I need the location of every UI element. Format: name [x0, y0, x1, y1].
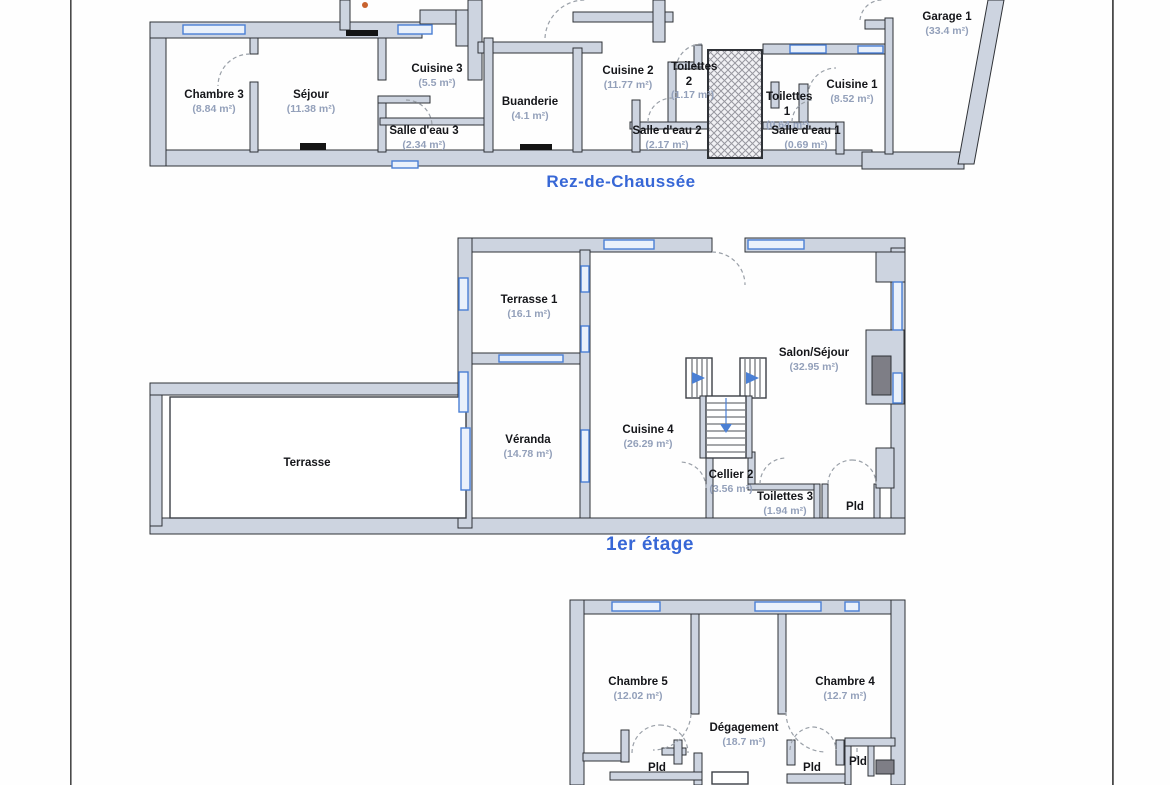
room-label-toilettes-3: Toilettes 3(1.94 m²) — [757, 490, 813, 518]
room-label-pld: Pld — [648, 761, 666, 776]
room-label-garage-1: Garage 1(33.4 m²) — [922, 10, 971, 38]
room-label-chambre-5: Chambre 5(12.02 m²) — [608, 675, 667, 703]
room-label-cuisine-1: Cuisine 1(8.52 m²) — [826, 78, 877, 106]
floor-title-premier-etage: 1er étage — [606, 534, 694, 556]
room-label-salle-d-eau-1: Salle d'eau 1(0.69 m²) — [771, 124, 840, 152]
room-label-pld: Pld — [846, 500, 864, 515]
room-label-salle-d-eau-2: Salle d'eau 2(2.17 m²) — [632, 124, 701, 152]
room-label-chambre-4: Chambre 4(12.7 m²) — [815, 675, 874, 703]
room-label-terrasse: Terrasse — [283, 456, 330, 471]
room-label-buanderie: Buanderie(4.1 m²) — [502, 95, 558, 123]
floor-plan-page: Rez-de-ChausséeChambre 3(8.84 m²)Séjour(… — [0, 0, 1170, 785]
room-label-cuisine-2: Cuisine 2(11.77 m²) — [602, 64, 653, 92]
room-label-pld: Pld — [849, 755, 867, 770]
room-label-pld: Pld — [803, 761, 821, 776]
room-label-d-gagement: Dégagement(18.7 m²) — [709, 721, 778, 749]
plan-labels: Rez-de-ChausséeChambre 3(8.84 m²)Séjour(… — [0, 0, 1170, 785]
room-label-terrasse-1: Terrasse 1(16.1 m²) — [501, 293, 558, 321]
room-label-salon-s-jour: Salon/Séjour(32.95 m²) — [779, 346, 849, 374]
room-label-chambre-3: Chambre 3(8.84 m²) — [184, 88, 243, 116]
room-label-toilettes-2: Toilettes 2(1.17 m²) — [671, 60, 707, 103]
room-label-cellier-2: Cellier 2(3.56 m²) — [709, 468, 754, 496]
room-label-cuisine-4: Cuisine 4(26.29 m²) — [622, 423, 673, 451]
room-label-v-randa: Véranda(14.78 m²) — [503, 433, 552, 461]
room-label-s-jour: Séjour(11.38 m²) — [287, 88, 335, 116]
floor-title-rez-de-chaussee: Rez-de-Chaussée — [546, 172, 695, 192]
room-label-cuisine-3: Cuisine 3(5.5 m²) — [411, 62, 462, 90]
room-label-salle-d-eau-3: Salle d'eau 3(2.34 m²) — [389, 124, 458, 152]
